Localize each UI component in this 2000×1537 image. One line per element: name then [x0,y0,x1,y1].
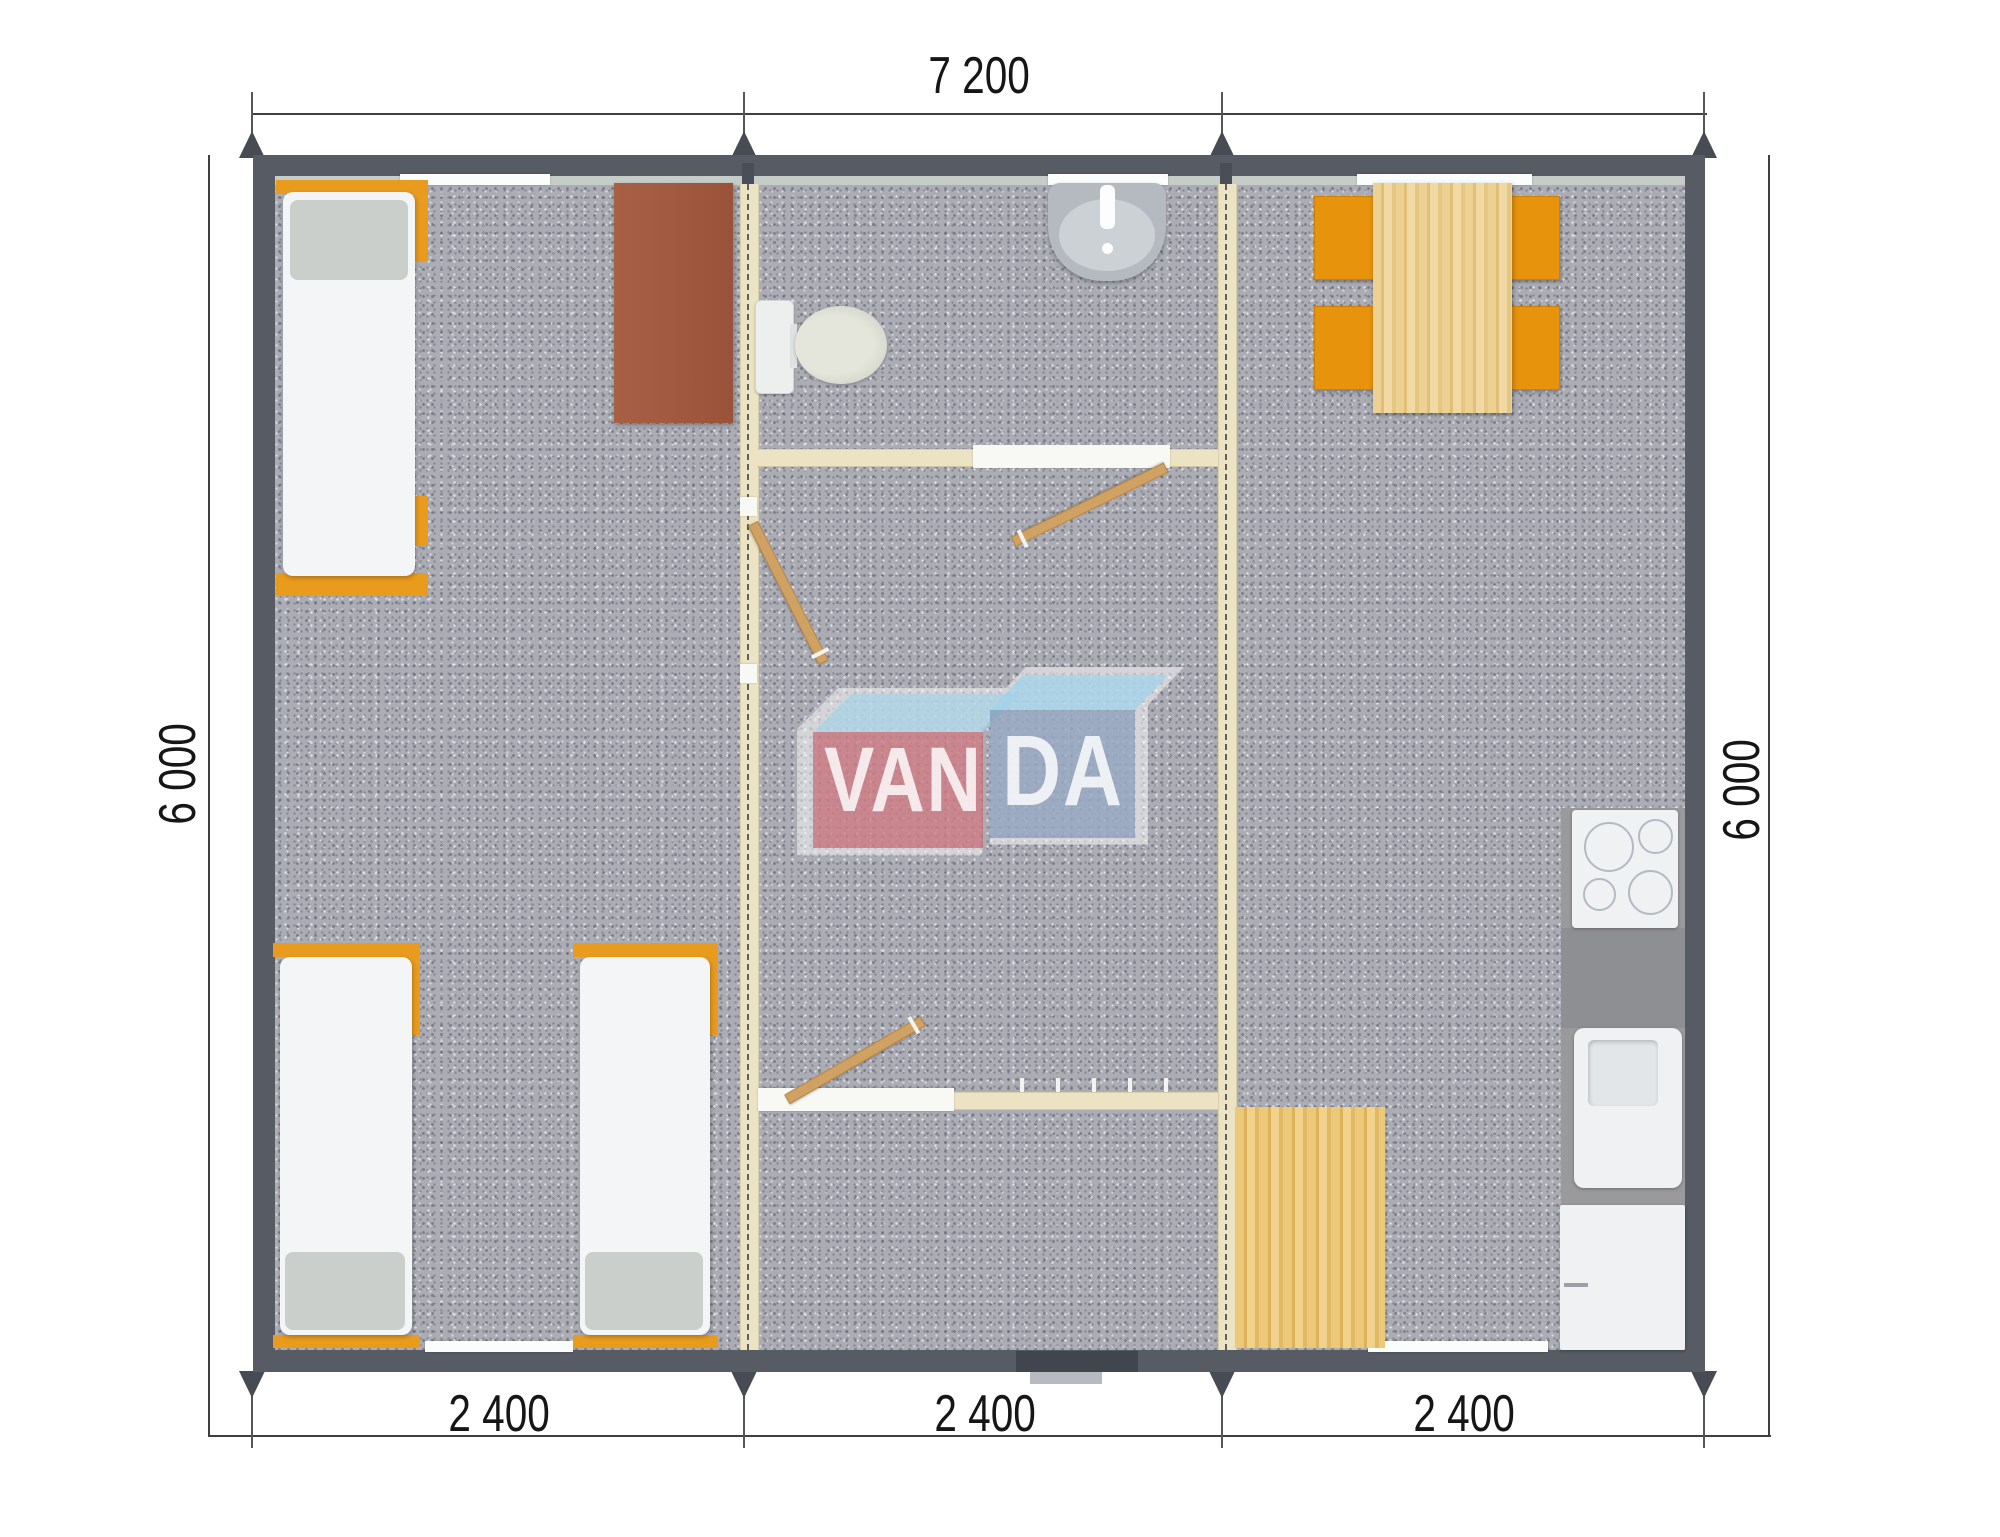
dimension-label-left: 6 000 [148,664,208,884]
burner-icon [1628,870,1673,915]
dimension-label-bottom-2: 2 400 [885,1384,1085,1444]
burner-icon [1638,819,1673,854]
module-joint-tick [1220,163,1232,186]
bed-frame [414,180,428,262]
door-jamb [740,664,757,683]
bed-frame [273,1335,420,1348]
fridge [1560,1205,1685,1350]
window [1368,1341,1548,1352]
bed-bottom-left [273,943,420,1348]
coat-hook-icon [1092,1078,1096,1092]
dimension-label-bottom-3: 2 400 [1364,1384,1564,1444]
entry-mat [1235,1107,1385,1348]
dimension-arrow-icon [239,1371,265,1398]
exterior-wall-bottom [253,1350,1705,1372]
toilet-bowl [795,306,887,384]
dining-table [1373,183,1512,413]
coat-hook-icon [1164,1078,1168,1092]
dimension-label-right: 6 000 [1712,680,1772,900]
dimension-arrow-icon [1691,131,1717,158]
exterior-wall-right [1685,155,1705,1372]
dimension-line-top [251,113,1707,115]
chair [1510,306,1560,390]
toilet-tank [755,300,794,394]
joint-centerline [1225,184,1227,1350]
dimension-arrow-icon [1209,1371,1235,1398]
bed-frame [573,1335,718,1348]
coat-hook-icon [1056,1078,1060,1092]
dimension-arrow-icon [731,131,757,158]
kitchen-counter-section [1561,928,1685,1028]
chair [1314,196,1375,280]
sink-basin [1588,1040,1658,1106]
bed-frame [276,573,428,596]
logo-text-da: DA [1002,714,1124,829]
vanda-logo: VAN DA [800,672,1180,857]
floor-plan-canvas: 7 200 6 000 6 000 2 400 2 400 2 400 [0,0,2000,1537]
faucet-spout-icon [1102,243,1113,254]
bed-top-left [276,180,428,596]
joint-centerline [747,184,749,1350]
dimension-arrow-icon [1209,131,1235,158]
cooktop [1572,810,1678,928]
chair [1314,306,1375,390]
exterior-wall-left [253,155,275,1372]
bed-frame [573,943,718,957]
bed-bottom-center [573,943,718,1348]
dimension-arrow-icon [1691,1371,1717,1398]
door-handle-icon [1017,529,1029,548]
dimension-label-top: 7 200 [879,46,1079,106]
pillow [285,1252,405,1330]
logo-text-van: VAN [824,728,983,833]
dimension-line-left [208,155,210,1437]
coat-hook-icon [1020,1078,1024,1092]
pillow [290,200,408,280]
door-handle-icon [907,1016,920,1034]
entry-step [1030,1372,1102,1384]
chair [1510,196,1560,280]
dimension-arrow-icon [731,1371,757,1398]
dimension-label-bottom-1: 2 400 [399,1384,599,1444]
bed-frame [273,943,420,957]
coat-hook-icon [1128,1078,1132,1092]
module-joint-tick [742,163,754,186]
window [425,1341,573,1352]
kitchen-sink [1574,1028,1682,1188]
faucet-icon [1100,185,1115,229]
door-jamb [740,497,757,516]
pillow [585,1252,703,1330]
burner-icon [1584,822,1634,872]
dimension-arrow-icon [239,131,265,158]
entry-door-threshold [1016,1351,1138,1372]
bathroom-door-opening [973,445,1170,468]
burner-icon [1583,878,1616,911]
desk [614,183,733,423]
fridge-handle-icon [1564,1283,1588,1287]
